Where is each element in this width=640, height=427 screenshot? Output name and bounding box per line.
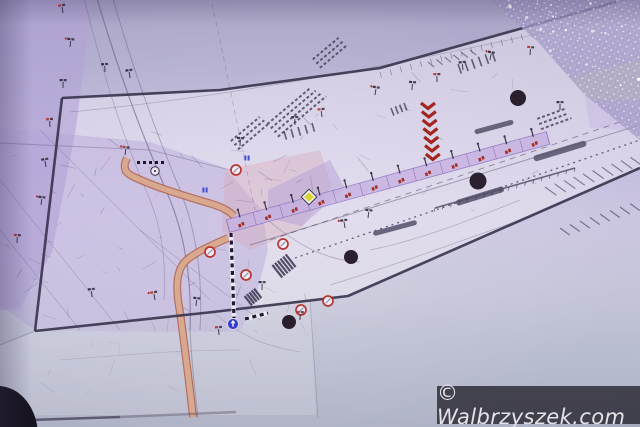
building-dot — [149, 161, 152, 164]
tree-symbol — [510, 90, 526, 106]
building-dot — [155, 161, 158, 164]
tree-symbol — [344, 250, 358, 264]
tree-symbol — [470, 173, 487, 190]
watermark-bar: © Walbrzyszek.com — [437, 386, 640, 424]
tree-symbol — [282, 315, 296, 329]
building-dot — [161, 161, 164, 164]
projection-photo: © Walbrzyszek.com — [0, 0, 640, 427]
blue-label-mark — [244, 156, 246, 161]
building-dot — [137, 161, 140, 164]
blue-label-mark — [202, 188, 204, 193]
traffic-plan-drawing — [0, 0, 640, 427]
watermark-text: © Walbrzyszek.com — [437, 381, 640, 427]
building-dot — [143, 161, 146, 164]
